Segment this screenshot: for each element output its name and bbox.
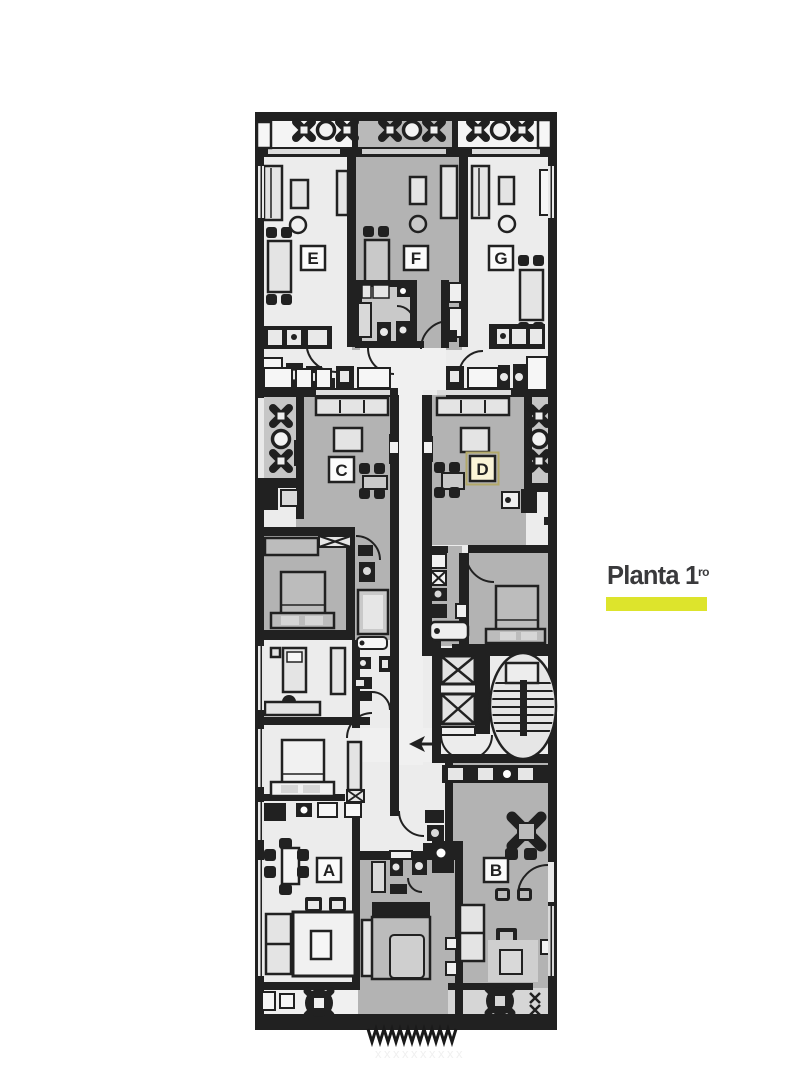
svg-text:A: A bbox=[323, 861, 335, 880]
svg-text:D: D bbox=[476, 460, 488, 479]
svg-text:G: G bbox=[494, 249, 507, 268]
svg-text:ro: ro bbox=[698, 565, 709, 579]
svg-text:C: C bbox=[335, 461, 347, 480]
svg-text:F: F bbox=[411, 249, 421, 268]
svg-text:xxxxxxxxxx: xxxxxxxxxx bbox=[375, 1046, 465, 1061]
svg-text:B: B bbox=[490, 861, 502, 880]
svg-text:E: E bbox=[307, 249, 318, 268]
svg-text:Planta 1: Planta 1 bbox=[607, 562, 699, 590]
